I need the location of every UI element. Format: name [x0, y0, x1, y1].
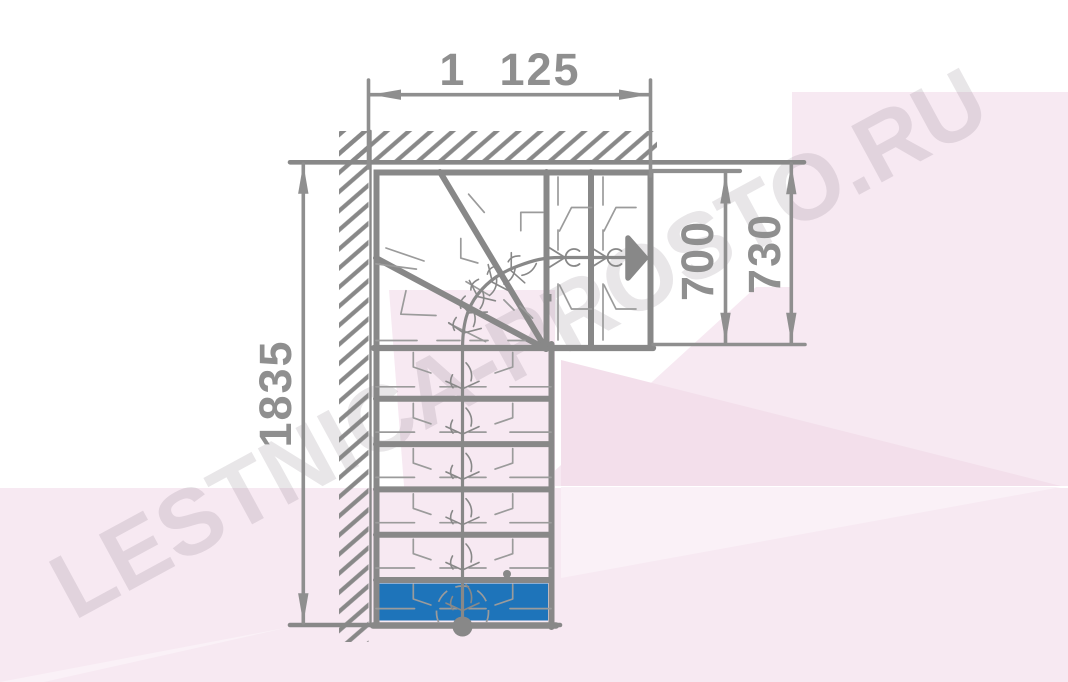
svg-text:1835: 1835: [250, 339, 301, 447]
svg-text:730: 730: [739, 213, 790, 294]
svg-text:700: 700: [672, 220, 723, 301]
svg-text:1 125: 1 125: [439, 44, 580, 95]
